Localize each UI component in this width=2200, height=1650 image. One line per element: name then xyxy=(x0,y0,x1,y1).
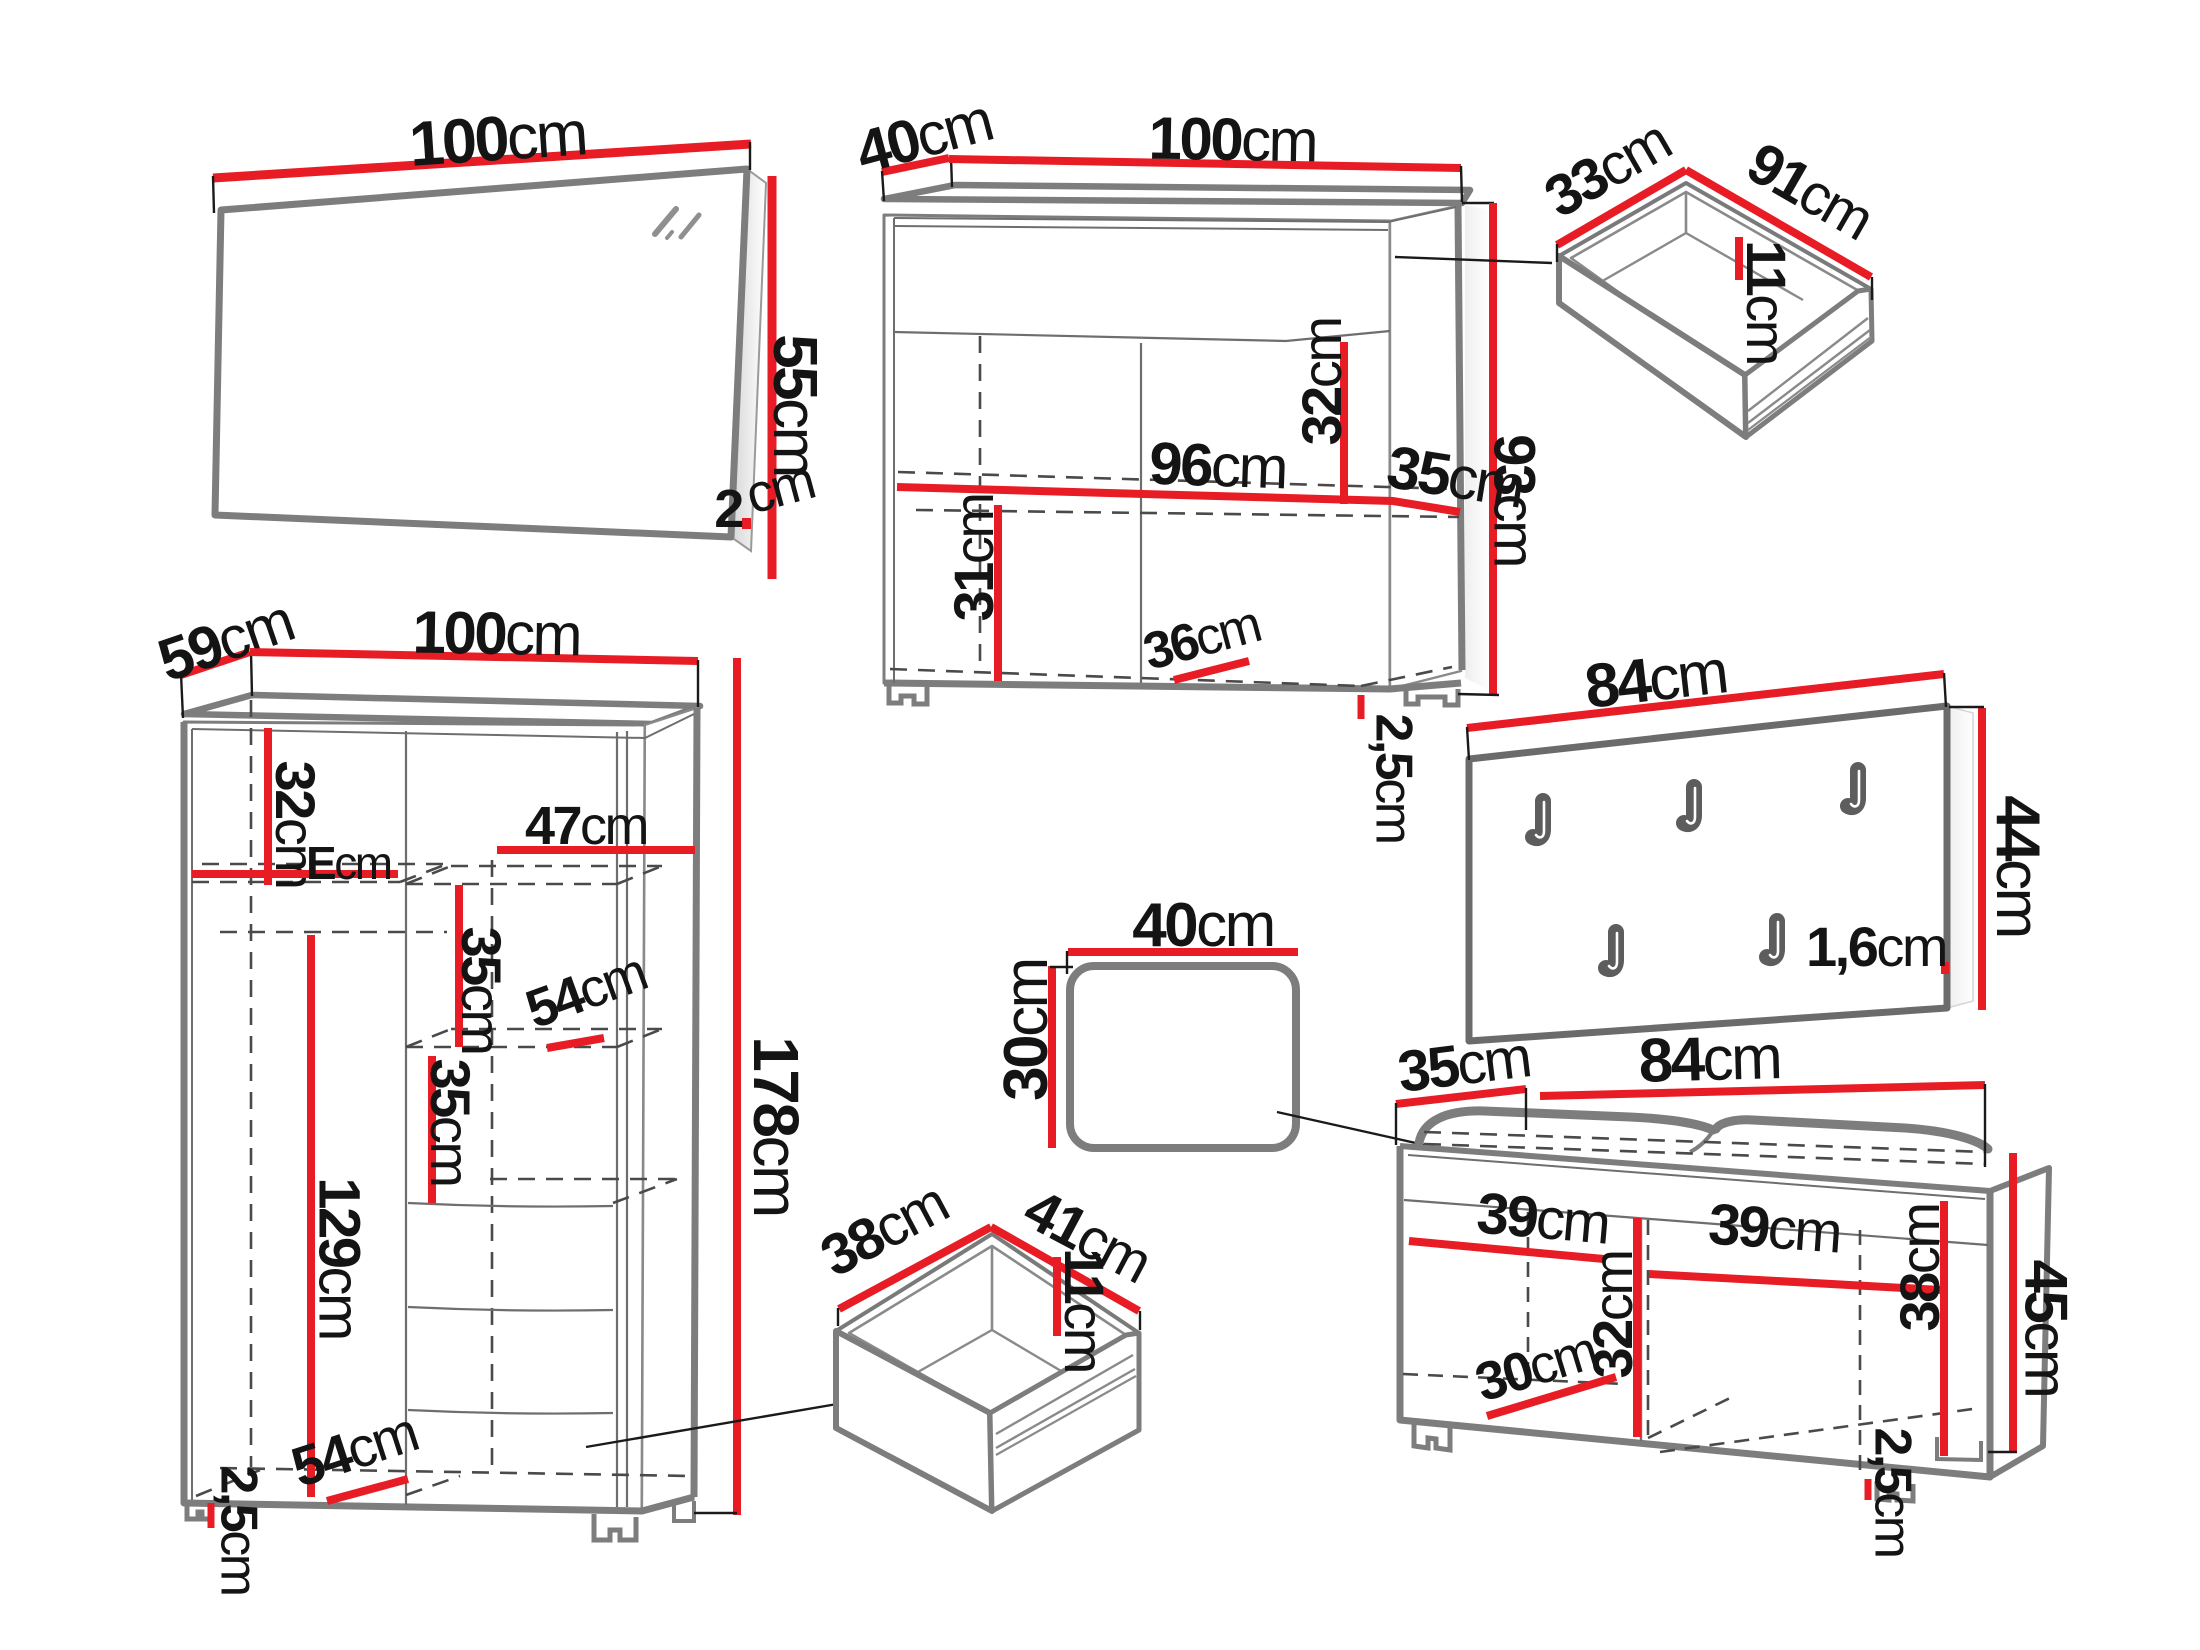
svg-text:38cm: 38cm xyxy=(1888,1205,1951,1332)
svg-text:32cm: 32cm xyxy=(1290,319,1353,446)
svg-text:30cm: 30cm xyxy=(992,959,1061,1101)
svg-text:Ecm: Ecm xyxy=(306,837,391,889)
svg-text:39cm: 39cm xyxy=(1706,1192,1842,1266)
svg-text:100cm: 100cm xyxy=(407,98,588,180)
svg-text:39cm: 39cm xyxy=(1474,1180,1611,1256)
svg-text:47cm: 47cm xyxy=(525,796,647,856)
svg-text:84cm: 84cm xyxy=(1638,1023,1781,1096)
svg-text:31cm: 31cm xyxy=(942,495,1005,622)
svg-text:44cm: 44cm xyxy=(1983,795,2052,937)
svg-text:100cm: 100cm xyxy=(412,599,581,669)
svg-text:35cm: 35cm xyxy=(419,1059,482,1186)
svg-text:1,6cm: 1,6cm xyxy=(1806,915,1946,978)
svg-text:2,5cm: 2,5cm xyxy=(209,1465,267,1594)
svg-text:11cm: 11cm xyxy=(1053,1248,1116,1372)
svg-text:96cm: 96cm xyxy=(1148,430,1287,502)
svg-text:178cm: 178cm xyxy=(740,1036,812,1216)
svg-text:45cm: 45cm xyxy=(2013,1260,2080,1397)
svg-text:129cm: 129cm xyxy=(306,1177,371,1339)
svg-text:2,5cm: 2,5cm xyxy=(1364,713,1422,842)
svg-text:40cm: 40cm xyxy=(1132,891,1274,960)
svg-text:2,5cm: 2,5cm xyxy=(1863,1427,1921,1556)
svg-text:2: 2 xyxy=(714,479,742,539)
svg-text:100cm: 100cm xyxy=(1148,105,1317,175)
svg-text:35cm: 35cm xyxy=(450,927,513,1054)
svg-text:11cm: 11cm xyxy=(1735,240,1798,364)
